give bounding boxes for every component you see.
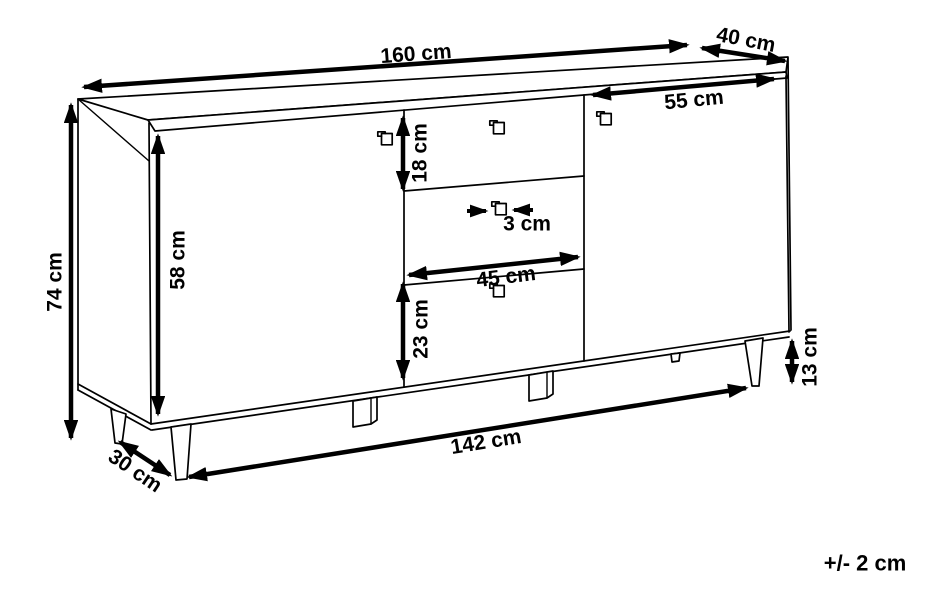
dimension-label: 74 cm <box>44 252 67 312</box>
dimension-total-height: 74 cm <box>44 105 72 438</box>
sideboard-dimension-diagram: 160 cm 40 cm 55 cm 74 cm 58 cm 18 cm 3 c… <box>0 0 952 600</box>
leg-front-middle-left <box>353 397 377 427</box>
leg-front-middle-right <box>529 371 553 401</box>
dimension-lower-drawer-height: 23 cm <box>403 284 433 378</box>
cabinet-front-bottom-edge <box>151 331 790 424</box>
leg-back-right <box>671 353 680 362</box>
dimension-label: 58 cm <box>167 230 190 290</box>
dimension-top-drawer-height: 18 cm <box>403 118 432 189</box>
dimension-label: 55 cm <box>663 86 724 115</box>
dimension-base-width: 142 cm <box>189 388 746 477</box>
dimension-door-height: 58 cm <box>158 136 190 414</box>
dimension-top-depth: 40 cm <box>702 23 785 61</box>
leg-front-left <box>171 424 191 480</box>
dimension-base-depth: 30 cm <box>104 442 170 497</box>
dimension-label: 18 cm <box>409 123 432 183</box>
dimension-handle-depth: 3 cm <box>467 210 551 236</box>
leg-front-right <box>745 338 763 386</box>
cabinet-front-bottom-lip <box>152 337 789 430</box>
top-drawer-handle-icon <box>490 121 504 134</box>
dimension-label: 13 cm <box>799 327 822 387</box>
left-door-handle-icon <box>378 132 392 145</box>
dimension-label: 142 cm <box>449 425 523 459</box>
dimension-label: 23 cm <box>410 299 433 359</box>
leg-back-left <box>111 409 126 444</box>
dimension-leg-height: 13 cm <box>792 327 822 387</box>
dimension-label: 3 cm <box>503 213 551 236</box>
dimension-drawer-width: 45 cm <box>409 257 578 292</box>
dimension-diagram-page: 160 cm 40 cm 55 cm 74 cm 58 cm 18 cm 3 c… <box>0 0 952 600</box>
tolerance-note: +/- 2 cm <box>824 551 907 576</box>
right-door-handle-icon <box>597 112 611 125</box>
cabinet-front-left-edge <box>149 123 151 424</box>
